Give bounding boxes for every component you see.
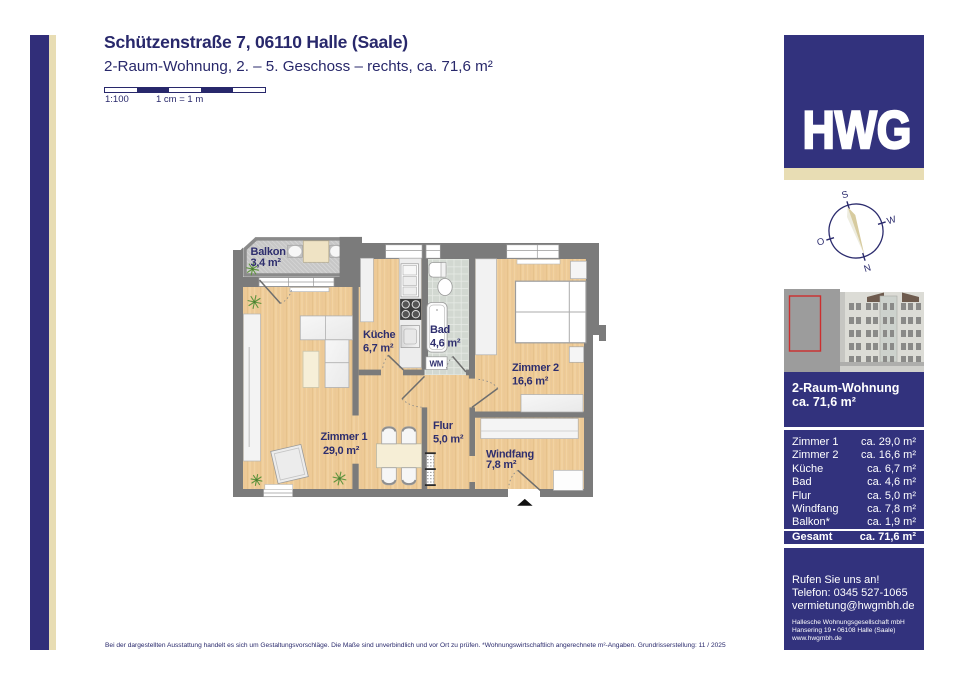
svg-text:5,0 m²: 5,0 m²: [433, 434, 464, 446]
svg-text:WM: WM: [430, 360, 444, 369]
svg-text:Flur: Flur: [433, 420, 454, 432]
svg-text:3,4 m²: 3,4 m²: [251, 257, 282, 269]
svg-text:Bad: Bad: [430, 324, 450, 336]
svg-text:O: O: [816, 236, 826, 249]
svg-text:Zimmer 1: Zimmer 1: [321, 431, 368, 443]
svg-text:W: W: [886, 214, 898, 227]
svg-text:S: S: [840, 189, 849, 201]
svg-text:Zimmer 2: Zimmer 2: [512, 362, 559, 374]
svg-text:16,6 m²: 16,6 m²: [512, 376, 549, 388]
svg-text:Küche: Küche: [363, 329, 396, 341]
svg-text:6,7 m²: 6,7 m²: [363, 343, 394, 355]
svg-text:N: N: [863, 262, 873, 275]
svg-text:29,0 m²: 29,0 m²: [323, 445, 360, 457]
svg-text:7,8 m²: 7,8 m²: [486, 459, 517, 471]
svg-text:4,6 m²: 4,6 m²: [430, 338, 461, 350]
